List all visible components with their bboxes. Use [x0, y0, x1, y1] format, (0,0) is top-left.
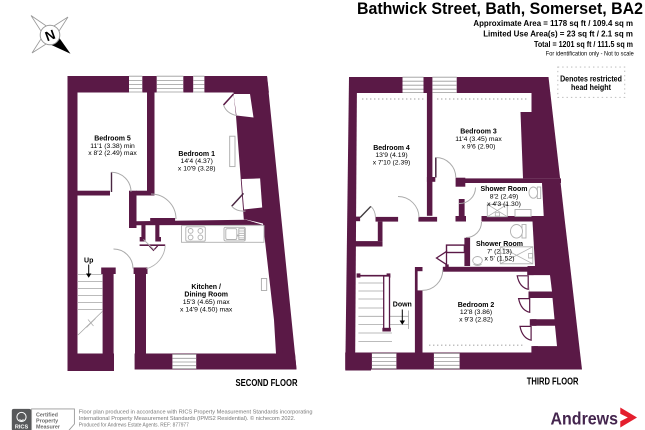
svg-text:x 14'9 (4.50) max: x 14'9 (4.50) max — [180, 306, 233, 313]
svg-text:Total = 1201 sq ft / 111.5 sq: Total = 1201 sq ft / 111.5 sq m — [534, 39, 633, 49]
svg-text:SECOND FLOOR: SECOND FLOOR — [236, 378, 299, 389]
svg-text:Limited Use Area(s) = 23 sq ft: Limited Use Area(s) = 23 sq ft / 2.1 sq … — [483, 28, 633, 38]
svg-text:Bedroom 3: Bedroom 3 — [460, 129, 497, 136]
svg-text:14'4 (4.37): 14'4 (4.37) — [181, 158, 213, 165]
svg-text:11'1 (3.38) min: 11'1 (3.38) min — [90, 143, 135, 150]
svg-text:Bedroom 2: Bedroom 2 — [458, 302, 495, 309]
svg-text:THIRD FLOOR: THIRD FLOOR — [527, 376, 579, 387]
svg-text:13'9 (4.19): 13'9 (4.19) — [375, 152, 407, 159]
svg-text:International Property Measure: International Property Measurement Stand… — [79, 415, 296, 422]
svg-text:Measurer: Measurer — [36, 425, 61, 430]
svg-text:Shower Room: Shower Room — [480, 186, 527, 193]
svg-text:Shower Room: Shower Room — [476, 241, 523, 248]
svg-text:Andrews: Andrews — [551, 409, 619, 429]
svg-text:7' (2.13): 7' (2.13) — [487, 248, 512, 255]
svg-text:Approximate Area = 1178 sq ft: Approximate Area = 1178 sq ft / 109.4 sq… — [473, 18, 633, 28]
svg-text:Bathwick Street, Bath, Somerse: Bathwick Street, Bath, Somerset, BA2 — [357, 0, 643, 18]
svg-text:Produced for Andrews Estate Ag: Produced for Andrews Estate Agents. REF:… — [79, 423, 189, 429]
svg-text:8'2 (2.49): 8'2 (2.49) — [490, 194, 519, 201]
svg-text:Floor plan produced in accorda: Floor plan produced in accordance with R… — [79, 409, 313, 415]
svg-text:Bedroom 4: Bedroom 4 — [373, 145, 410, 152]
svg-text:Denotes restricted: Denotes restricted — [560, 74, 622, 83]
svg-text:For identification only - Not: For identification only - Not to scale — [546, 51, 635, 57]
svg-text:12'8 (3.86): 12'8 (3.86) — [460, 309, 492, 316]
svg-text:x 10'9 (3.28): x 10'9 (3.28) — [178, 165, 216, 172]
svg-text:x 8'2 (2.49) max: x 8'2 (2.49) max — [88, 150, 137, 157]
svg-text:x 9'6 (2.90): x 9'6 (2.90) — [462, 143, 496, 150]
svg-text:head height: head height — [571, 83, 611, 92]
svg-text:11'4 (3.45) max: 11'4 (3.45) max — [455, 136, 502, 143]
svg-text:Dining Room: Dining Room — [184, 292, 228, 299]
svg-text:15'3 (4.65) max: 15'3 (4.65) max — [183, 299, 231, 306]
svg-text:RICS: RICS — [15, 425, 29, 430]
svg-text:x 7'10 (2.39): x 7'10 (2.39) — [373, 160, 411, 167]
svg-text:Kitchen /: Kitchen / — [191, 284, 221, 291]
svg-text:x 5' (1.52): x 5' (1.52) — [484, 256, 514, 263]
svg-text:x 9'3 (2.82): x 9'3 (2.82) — [459, 317, 493, 324]
svg-text:Bedroom 5: Bedroom 5 — [94, 136, 131, 143]
svg-text:x 4'3 (1.30): x 4'3 (1.30) — [487, 201, 521, 208]
svg-text:Up: Up — [84, 257, 93, 264]
svg-text:Bedroom 1: Bedroom 1 — [178, 151, 215, 158]
svg-text:Down: Down — [393, 302, 412, 309]
